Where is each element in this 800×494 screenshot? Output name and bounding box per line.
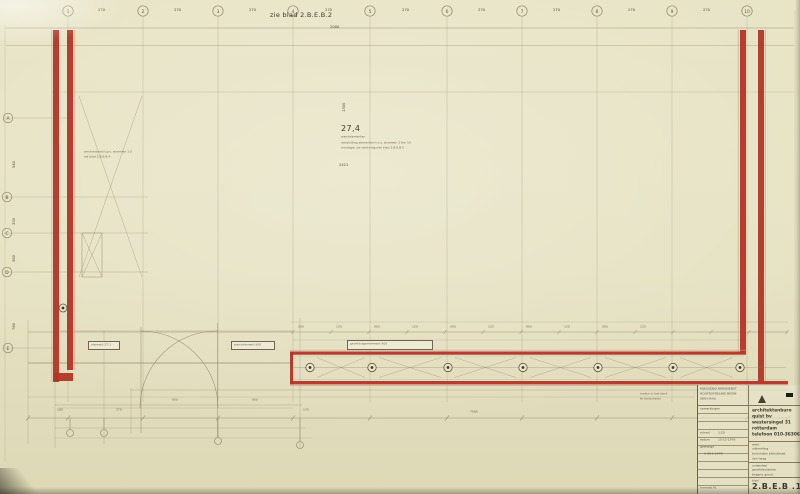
date-label: datum: [700, 438, 710, 442]
firm-name: architektenburo: [752, 408, 792, 413]
annotation-note: te kontroleren: [640, 397, 661, 401]
bottom-dimension-lines: [26, 300, 790, 449]
scale-label: schaal: [700, 431, 710, 435]
dimension-label: 900: [252, 398, 258, 402]
firm-phone: telefoon 010-363066: [752, 432, 800, 437]
revision-value: A 20-1-1978: [704, 452, 723, 456]
org-name: HOOFDAFDELING BEGIN: [700, 392, 736, 396]
dimension-label: 270: [116, 408, 122, 412]
dimension-label: 120: [564, 325, 570, 329]
element-label-box: geveldragerelement 900: [347, 340, 433, 350]
dimension-label: 270: [402, 8, 409, 12]
dimension-label: 540: [12, 161, 16, 168]
dimension-label: 180: [57, 408, 63, 412]
grid-label: 9: [671, 9, 674, 15]
drawing-linework: 1 2 3 4 5 6 7 8 9 10 A B C D E: [0, 0, 800, 494]
grid-label: 2: [142, 9, 145, 15]
firm-address: rotterdam: [752, 426, 777, 431]
dimension-label: 7560: [470, 410, 478, 414]
dimension-label: 120: [336, 325, 342, 329]
dimension-label: 270: [628, 8, 635, 12]
grid-label: C: [5, 231, 8, 237]
grid-label: 10: [744, 9, 750, 15]
dimension-label: 900: [526, 325, 532, 329]
detail-number: 27,4: [341, 124, 360, 134]
stamp-mark: [786, 393, 793, 397]
grid-label: 8: [596, 9, 599, 15]
north-arrow-icon: [758, 395, 766, 403]
dimension-label: 120: [412, 325, 418, 329]
left-wall-red: [51, 30, 142, 382]
architectural-drawing-sheet: 1 2 3 4 5 6 7 8 9 10 A B C D E: [0, 0, 800, 494]
annotation-note: zie blad 2.B.E.B.4: [84, 155, 110, 159]
format-label: formaat A1: [700, 486, 717, 490]
dimension-label: 120: [488, 325, 494, 329]
grid-bubbles: [2, 6, 752, 353]
dimension-label: 900: [374, 325, 380, 329]
project-label: werk: [752, 443, 759, 447]
dimension-label: 760: [12, 323, 16, 330]
org-name: RIJKSGEBOUWENDIENST: [700, 387, 737, 391]
dimension-label: 2421: [339, 163, 348, 167]
facade-band: [290, 350, 788, 386]
annotation-note: windverband t.p.v. stramien 1-2: [84, 150, 132, 154]
scale-value: 1:20: [718, 431, 725, 435]
part-value: begane grond: [752, 473, 773, 477]
grid-label: 3: [217, 9, 220, 15]
remarks-label: opmerkingen: [700, 407, 720, 411]
detail-note: aansluiting elementen t.o.v. stramien 1 …: [341, 141, 411, 145]
dimension-label: 900: [298, 325, 304, 329]
dimension-label: 270: [703, 8, 710, 12]
dimension-label: 270: [553, 8, 560, 12]
title-block-divider: [698, 405, 800, 406]
firm-name: quist bv: [752, 414, 772, 419]
dimension-label: 1300: [342, 103, 346, 112]
sheet-grid: [4, 10, 795, 486]
project-name: koninklijke bibliotheek: [752, 452, 785, 456]
sheet-reference-note: zie blad 2.B.E.B.2: [270, 12, 332, 20]
grid-label: 6: [446, 9, 449, 15]
double-door-swing: [140, 323, 218, 437]
element-label-box: element 27.1: [88, 341, 120, 350]
dimension-label: 120: [640, 325, 646, 329]
date-value: 15-12-1976: [718, 438, 735, 442]
sheet-number: 2.B.E.B .1: [752, 482, 800, 492]
dimension-label: 270: [174, 8, 181, 12]
project-name: den haag: [752, 457, 766, 461]
dimension-label: 2000: [330, 25, 339, 29]
part-label: onderdeel: [752, 464, 767, 468]
dimension-label: 330: [12, 218, 16, 225]
grid-label: B: [5, 195, 8, 201]
element-label: element 27.1: [91, 343, 111, 347]
revision-label: gewijzigd: [700, 445, 714, 449]
grid-label: D: [5, 270, 9, 276]
element-label: wandelement 900: [234, 343, 261, 347]
annotation-note: maten in het werk: [640, 392, 667, 396]
dimension-label: 270: [478, 8, 485, 12]
grid-label: 1: [67, 9, 70, 15]
firm-address: westersingel 31: [752, 420, 791, 425]
dimension-label: 900: [602, 325, 608, 329]
dimension-label: 270: [325, 8, 332, 12]
detail-caption: wandelementen: [341, 135, 365, 139]
right-wall-red: [738, 30, 766, 382]
dimension-label: 170: [303, 408, 309, 412]
element-label-box: wandelement 900: [231, 341, 275, 350]
dimension-label: 380: [12, 255, 16, 262]
dimension-label: 270: [249, 8, 256, 12]
grid-label: A: [6, 116, 9, 122]
dimension-label: 900: [450, 325, 456, 329]
part-value: gevelelementen: [752, 468, 776, 472]
grid-bubble-labels: 1 2 3 4 5 6 7 8 9 10 A B C D E: [5, 9, 750, 352]
org-name: DEN HAAG: [700, 397, 716, 401]
detail-note: montage: zie werkvolgorde blad 2.B.E.B.5: [341, 146, 404, 150]
project-name: uitbreiding: [752, 447, 768, 451]
dimension-label: 900: [172, 398, 178, 402]
element-label: geveldragerelement 900: [350, 342, 387, 346]
grid-label: 7: [521, 9, 524, 15]
grid-label: 5: [369, 9, 372, 15]
grid-label: E: [7, 346, 10, 352]
title-block: RIJKSGEBOUWENDIENST HOOFDAFDELING BEGIN …: [697, 385, 800, 494]
dimension-label: 270: [98, 8, 105, 12]
